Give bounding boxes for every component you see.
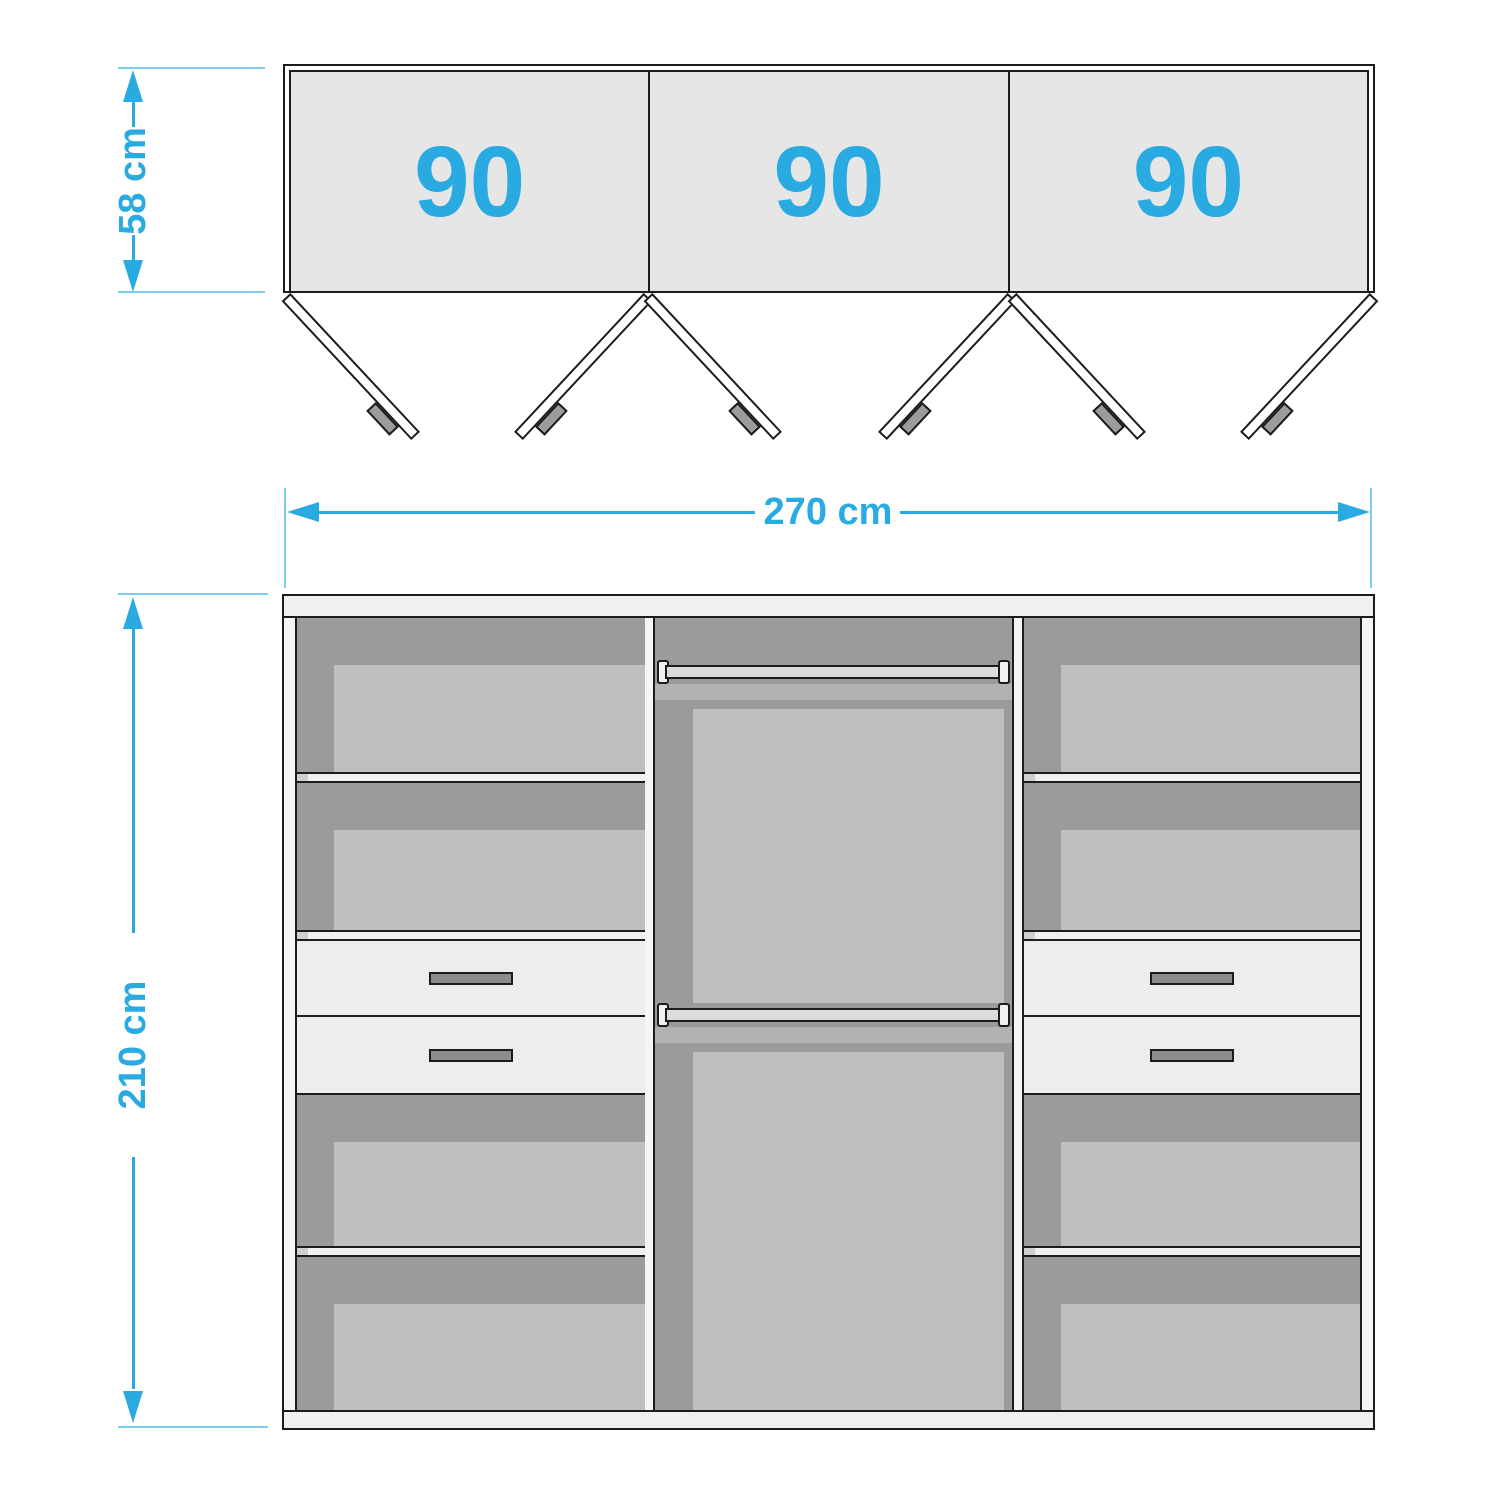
- shelf: [297, 1246, 645, 1257]
- compartment-back-panel: [1061, 830, 1360, 930]
- shelf: [297, 930, 645, 941]
- arrow-right-icon: [1338, 502, 1370, 522]
- door-handle-icon: [366, 402, 399, 436]
- shelf-compartment: [1024, 1257, 1360, 1410]
- extension-line: [1370, 488, 1372, 588]
- extension-line: [118, 593, 268, 595]
- rail-end-cap: [998, 660, 1010, 684]
- compartment-shading-band: [655, 1027, 1012, 1043]
- door-handle-icon: [728, 402, 761, 436]
- depth-label: 58 cm: [113, 126, 153, 236]
- shelf-support: [297, 932, 308, 939]
- open-door-3: [644, 293, 782, 440]
- shelf-compartment: [297, 618, 645, 772]
- top-view-panel-2: 90: [648, 72, 1009, 291]
- wardrobe-bottom-board: [284, 1410, 1373, 1428]
- shelf-compartment: [297, 1257, 645, 1410]
- height-label: 210 cm: [113, 935, 153, 1155]
- door-handle-icon: [535, 402, 568, 436]
- compartment-back-panel: [334, 665, 645, 772]
- drawer-handle: [1150, 1049, 1234, 1062]
- compartment-back-panel: [1061, 1304, 1360, 1410]
- open-door-4: [878, 293, 1016, 440]
- left-column: [297, 618, 645, 1410]
- dimension-line: [316, 511, 755, 514]
- top-view-panel-3: 90: [1010, 72, 1367, 291]
- shelf: [1024, 772, 1360, 783]
- compartment-back-panel: [1061, 1142, 1360, 1246]
- open-door-6: [1240, 293, 1378, 440]
- wardrobe-top-board: [284, 596, 1373, 618]
- dimension-line: [132, 1157, 135, 1389]
- compartment-back-panel: [334, 830, 645, 930]
- arrow-up-icon: [123, 70, 143, 102]
- shelf-support: [1024, 774, 1035, 781]
- compartment-back-panel: [334, 1304, 645, 1410]
- drawer-handle: [429, 1049, 513, 1062]
- open-door-2: [514, 293, 652, 440]
- shelf: [1024, 1246, 1360, 1257]
- open-door-1: [282, 293, 420, 440]
- compartment-shading-band: [655, 684, 1012, 700]
- hanging-back-panel: [693, 709, 1004, 1003]
- door-handle-icon: [1261, 402, 1294, 436]
- center-column: [655, 618, 1012, 1410]
- top-view-panel-1: 90: [291, 72, 648, 291]
- shelf-support: [297, 774, 308, 781]
- shelf-compartment: [1024, 1095, 1360, 1246]
- rail-end-cap: [998, 1003, 1010, 1027]
- dimension-line: [132, 625, 135, 933]
- right-column: [1024, 618, 1360, 1410]
- wardrobe-front-view: [282, 594, 1375, 1430]
- top-view-panel-fill: 90 90 90: [289, 70, 1369, 291]
- drawer: [1024, 1017, 1360, 1095]
- shelf-compartment: [297, 783, 645, 930]
- panel-width-label-1: 90: [414, 132, 525, 232]
- drawer-handle: [1150, 972, 1234, 985]
- clothes-rail-upper: [657, 660, 1010, 684]
- drawer: [1024, 941, 1360, 1017]
- rail-bar: [665, 1008, 1002, 1022]
- compartment-back-panel: [334, 1142, 645, 1246]
- width-label: 270 cm: [743, 492, 913, 532]
- extension-line: [284, 488, 286, 588]
- arrow-down-icon: [123, 1391, 143, 1423]
- arrow-down-icon: [123, 260, 143, 292]
- extension-line: [118, 1426, 268, 1428]
- dimension-line: [132, 235, 135, 260]
- shelf: [297, 772, 645, 783]
- shelf-support: [297, 1248, 308, 1255]
- hanging-back-panel: [693, 1052, 1004, 1410]
- shelf-support: [1024, 1248, 1035, 1255]
- shelf-compartment: [1024, 783, 1360, 930]
- wardrobe-left-wall: [284, 618, 297, 1410]
- rail-bar: [665, 665, 1002, 679]
- top-view-panel-row: 90 90 90: [283, 64, 1375, 293]
- drawer: [297, 941, 645, 1017]
- shelf-compartment: [297, 1095, 645, 1246]
- arrow-left-icon: [287, 502, 319, 522]
- door-handle-icon: [1092, 402, 1125, 436]
- wardrobe-right-wall: [1360, 618, 1373, 1410]
- clothes-rail-lower: [657, 1003, 1010, 1027]
- compartment-back-panel: [1061, 665, 1360, 772]
- dimension-line: [900, 511, 1338, 514]
- shelf-support: [1024, 932, 1035, 939]
- drawer-handle: [429, 972, 513, 985]
- dimension-line: [132, 100, 135, 127]
- panel-width-label-2: 90: [773, 132, 884, 232]
- open-door-5: [1008, 293, 1146, 440]
- panel-width-label-3: 90: [1133, 132, 1244, 232]
- wardrobe-dimension-diagram: 90 90 90 58 cm: [0, 0, 1500, 1500]
- shelf: [1024, 930, 1360, 941]
- extension-line: [118, 67, 265, 69]
- shelf-compartment: [1024, 618, 1360, 772]
- wardrobe-divider-2: [1012, 618, 1024, 1410]
- door-handle-icon: [899, 402, 932, 436]
- drawer: [297, 1017, 645, 1095]
